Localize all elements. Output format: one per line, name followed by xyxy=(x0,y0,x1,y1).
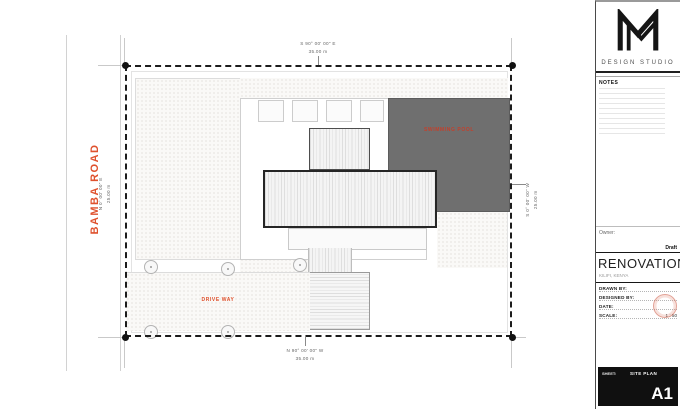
boundary-corner xyxy=(122,62,129,69)
divider xyxy=(596,226,680,227)
title-block-panel: DESIGN STUDIO NOTES Owner: Draft RENOVAT… xyxy=(595,0,680,409)
dimension-right-bearing: S 0° 00' 00" W xyxy=(525,183,530,217)
sheet-number: A1 xyxy=(651,384,673,404)
extension-line xyxy=(124,38,125,65)
divider xyxy=(596,252,680,253)
field-label: DESIGNED BY: xyxy=(599,295,634,300)
drawing-sheet: BAMBA ROAD N 0° 00' 00" E 25.00 m SWIMMI… xyxy=(0,0,680,409)
studio-name: DESIGN STUDIO xyxy=(596,60,680,66)
dimension-top-distance: 35.00 m xyxy=(309,49,328,54)
dimension-bottom-distance: 35.00 m xyxy=(296,356,315,361)
road-distance: 25.00 m xyxy=(106,184,111,203)
mm-monogram-icon xyxy=(616,9,660,53)
approval-stamp-icon xyxy=(653,294,677,318)
road-bearing: N 0° 00' 00" E xyxy=(98,177,103,210)
divider xyxy=(596,71,680,77)
dimension-right: S 0° 00' 00" W 25.00 m xyxy=(524,130,540,270)
boundary-corner xyxy=(122,334,129,341)
dimension-tick xyxy=(305,337,306,346)
sheet-label: SHEET: xyxy=(602,371,616,376)
dimension-tick xyxy=(318,56,319,65)
extension-line xyxy=(511,38,512,65)
site-boundary xyxy=(125,65,512,337)
logo: DESIGN STUDIO xyxy=(596,2,680,66)
owner-label: Owner: xyxy=(599,230,680,236)
project-location: KILIFI, KENYA xyxy=(599,273,680,278)
dimension-bottom-bearing: N 90° 00' 00" W xyxy=(287,348,324,353)
boundary-corner xyxy=(509,334,516,341)
extension-line xyxy=(124,337,125,368)
dimension-bottom: N 90° 00' 00" W 35.00 m xyxy=(235,347,375,363)
road-dimension: N 0° 00' 00" E 25.00 m xyxy=(97,119,113,269)
extension-line xyxy=(98,337,125,338)
notes-lines xyxy=(599,88,665,134)
boundary-corner xyxy=(509,62,516,69)
dimension-top: S 90° 00' 00" E 35.00 m xyxy=(248,40,388,56)
field-row-drawn-by: DRAWN BY: xyxy=(599,283,677,292)
draft-label: Draft xyxy=(596,245,677,251)
field-label: DRAWN BY: xyxy=(599,286,627,291)
dimension-right-distance: 25.00 m xyxy=(533,190,538,209)
field-label: DATE: xyxy=(599,304,614,309)
sheet-name: SITE PLAN xyxy=(630,371,657,376)
notes-label: NOTES xyxy=(599,80,680,86)
sheet-box: SHEET: SITE PLAN A1 xyxy=(598,367,678,406)
extension-line xyxy=(98,65,125,66)
extension-line xyxy=(511,337,512,368)
field-label: SCALE: xyxy=(599,313,617,318)
project-title: RENOVATION xyxy=(598,256,680,271)
dimension-top-bearing: S 90° 00' 00" E xyxy=(300,41,335,46)
